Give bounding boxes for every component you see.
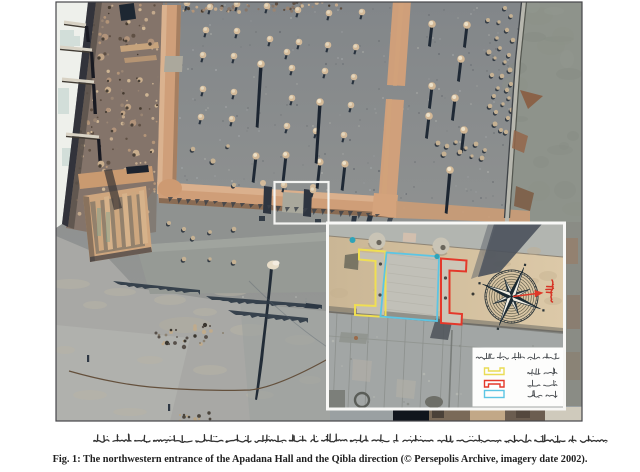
svg-text:Fig. 1: The northwestern entra: Fig. 1: The northwestern entrance of the… <box>53 454 588 465</box>
